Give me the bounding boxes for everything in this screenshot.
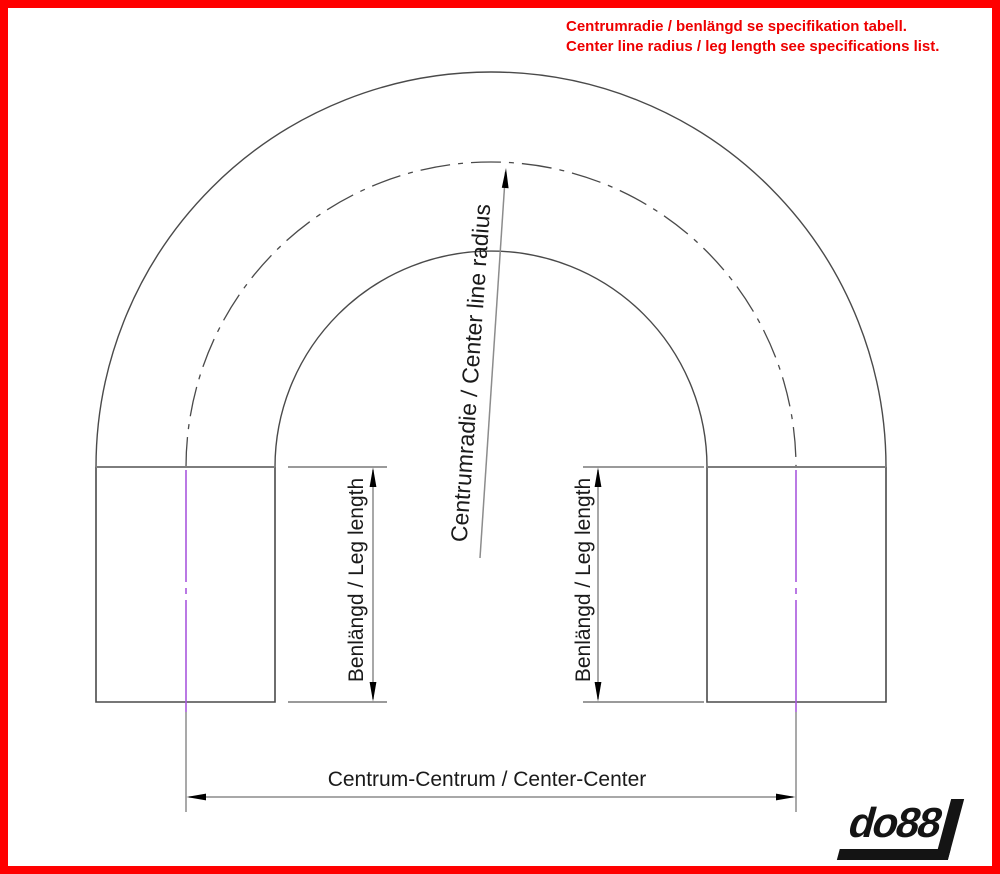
- radius-arrowhead-icon: [502, 168, 509, 188]
- drawing-page: Centrumradie / benlängd se specifikation…: [0, 0, 1000, 874]
- left-leg-arrow-down-icon: [370, 682, 377, 702]
- do88-logo-text: do88: [840, 799, 951, 847]
- cc-arrow-right-icon: [776, 794, 796, 801]
- do88-logo: do88: [837, 799, 964, 860]
- right-leg-label: Benlängd / Leg length: [572, 478, 596, 682]
- inner-arc: [275, 251, 707, 467]
- left-leg-arrow-up-icon: [370, 468, 377, 488]
- bend-diagram: [0, 0, 1000, 874]
- left-leg-label: Benlängd / Leg length: [345, 478, 369, 682]
- right-leg-arrow-down-icon: [595, 682, 602, 702]
- center-center-label: Centrum-Centrum / Center-Center: [328, 768, 647, 792]
- cc-arrow-left-icon: [187, 794, 207, 801]
